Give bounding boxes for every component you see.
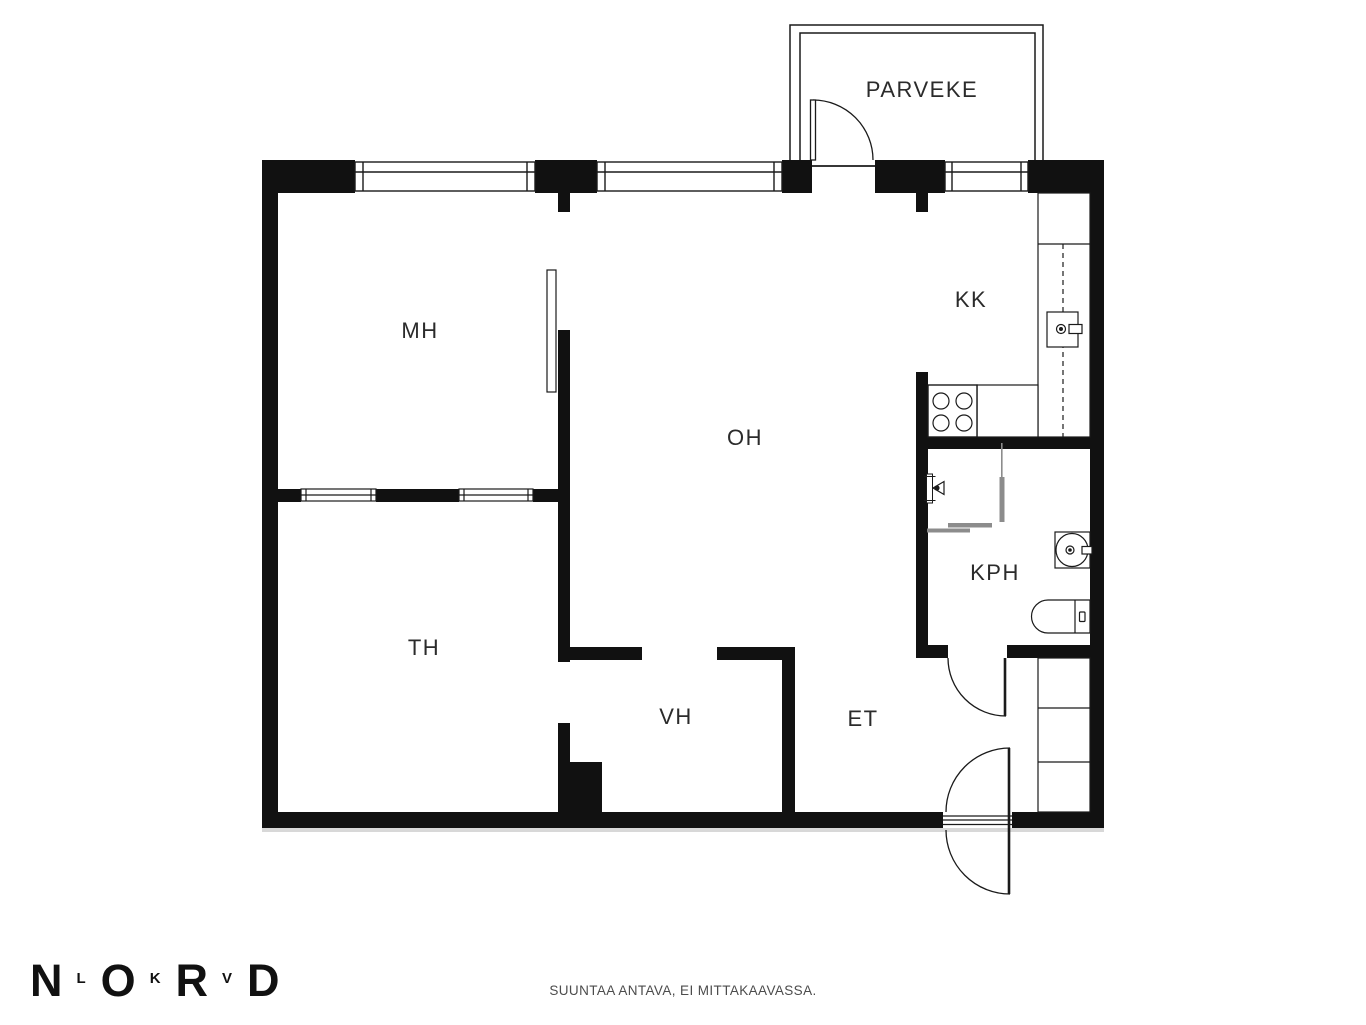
logo-letter: O <box>101 958 135 1003</box>
room-label-vh: VH <box>659 704 693 730</box>
room-label-oh: OH <box>727 425 763 451</box>
logo-letter: N <box>30 958 62 1003</box>
room-label-kk: KK <box>955 287 987 313</box>
washbasin <box>1055 532 1092 568</box>
floor-plan-page: PARVEKE MH OH KK KPH TH VH ET N L O K R … <box>0 0 1366 1025</box>
bathroom-door <box>948 658 1006 716</box>
toilet <box>1032 600 1091 633</box>
balcony-door <box>811 100 874 160</box>
kitchen-sink <box>1047 312 1082 347</box>
room-label-et: ET <box>847 706 878 732</box>
nord-lkv-logo: N L O K R V D <box>30 958 279 1003</box>
logo-letter: K <box>150 971 161 986</box>
wall-shadow <box>262 828 1104 832</box>
sliding-door <box>547 270 556 392</box>
logo-letter: L <box>77 971 86 986</box>
shower-head <box>924 474 944 503</box>
room-label-th: TH <box>408 635 440 661</box>
disclaimer-text: SUUNTAA ANTAVA, EI MITTAKAAVASSA. <box>549 983 816 998</box>
floor-plan-drawing <box>0 0 1366 1025</box>
entrance-door <box>943 748 1012 894</box>
logo-letter: R <box>176 958 208 1003</box>
stove-4-burners <box>928 385 977 437</box>
room-label-parveke: PARVEKE <box>866 77 978 103</box>
wardrobe <box>1038 658 1090 812</box>
room-label-kph: KPH <box>970 560 1020 586</box>
logo-letter: D <box>247 958 279 1003</box>
logo-letter: V <box>222 971 232 986</box>
room-label-mh: MH <box>401 318 438 344</box>
